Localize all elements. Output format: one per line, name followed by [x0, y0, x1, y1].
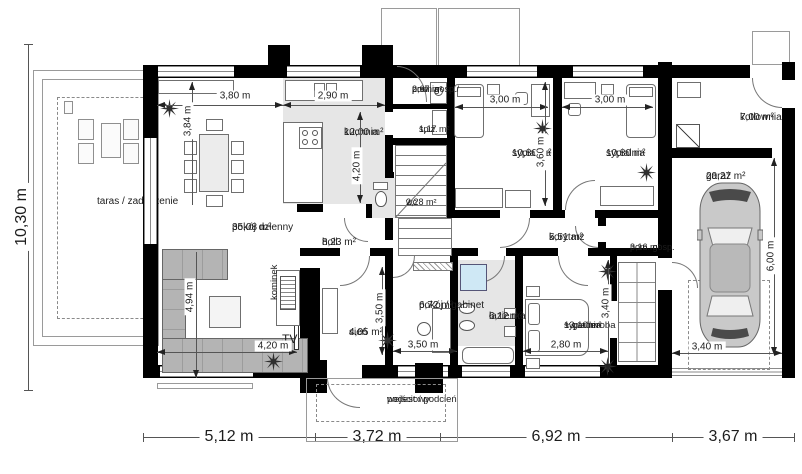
- terrace-table: [101, 123, 121, 158]
- terrace-grill: [64, 101, 73, 114]
- dim-tick: [143, 433, 144, 442]
- floor-plan: taras / zadaszenie: [0, 0, 802, 474]
- dining-chair: [184, 160, 197, 174]
- window-kitchen-top: [287, 66, 360, 77]
- dim-arrow: [605, 260, 611, 268]
- wall-house-garage: [658, 62, 672, 365]
- wall-corridor-bottom: [506, 248, 558, 256]
- wall-kitchen-island-stub: [297, 203, 323, 212]
- cooktop-burner: [312, 139, 318, 145]
- dim-arrow: [455, 104, 463, 110]
- nightstand: [526, 286, 540, 297]
- dim-label-sofa-h: 4,94 m: [185, 279, 196, 316]
- dining-chair: [231, 179, 244, 193]
- dim-arrow: [379, 267, 385, 275]
- car: [697, 180, 763, 350]
- wall-corridor-bottom: [588, 248, 598, 256]
- dim-arrow: [357, 195, 363, 203]
- dim-label-kitchen-h: 4,20 m: [352, 148, 363, 185]
- dim-tick: [24, 390, 33, 391]
- dim-label-bottom-3: 6,92 m: [527, 428, 586, 446]
- bed-pillow: [629, 87, 653, 97]
- dim-arrow: [672, 350, 680, 356]
- window-bath-bottom: [462, 366, 510, 377]
- cooktop-burner: [302, 130, 308, 136]
- porch-dashed: [316, 384, 446, 422]
- dim-label-bottom-4: 3,67 m: [704, 428, 763, 446]
- dim-line: [157, 352, 297, 353]
- wall-bedroom-divider: [553, 78, 562, 210]
- wall-garage-right: [782, 62, 795, 378]
- cooktop-burner: [302, 139, 308, 145]
- wall-corridor-top: [595, 210, 658, 218]
- terrace-chair: [78, 143, 94, 164]
- door-arc-bedroom2: [565, 180, 595, 210]
- boiler-door-outline: [752, 31, 790, 65]
- dim-arrow: [283, 102, 291, 108]
- door-arc-kotlownia: [752, 78, 782, 108]
- dim-arrow: [189, 82, 195, 90]
- dim-label-garage-w: 3,40 m: [689, 342, 726, 353]
- front-door-gap: [327, 365, 362, 378]
- dining-chair: [231, 160, 244, 174]
- dining-chair: [231, 141, 244, 155]
- sink-oval: [459, 320, 475, 331]
- wall-kitchen-pralnia: [385, 65, 393, 112]
- wall-hung-bidet: [504, 326, 516, 337]
- dim-line: [455, 107, 548, 108]
- door-arc-bedroom3: [558, 256, 588, 286]
- terrace-chair: [78, 119, 94, 140]
- dim-label-office-w: 3,50 m: [405, 340, 442, 351]
- dim-label-bed2-w: 3,00 m: [592, 95, 629, 106]
- window-bedroom2: [573, 66, 643, 77]
- bathtub: [462, 347, 514, 364]
- dim-arrow: [357, 112, 363, 120]
- nightstand: [487, 84, 500, 95]
- toilet-tank: [373, 182, 388, 190]
- dim-arrow: [542, 198, 548, 206]
- dim-label-bed1-w: 3,00 m: [487, 95, 524, 106]
- window-terrace-door: [144, 138, 157, 244]
- desk-chair: [417, 322, 431, 336]
- dim-arrow: [523, 348, 531, 354]
- dim-label-tv-wall: 4,20 m: [255, 341, 292, 352]
- dim-label-living-w: 3,80 m: [217, 91, 254, 102]
- wall-corridor-bottom: [300, 248, 340, 256]
- door-gap-kotlownia: [750, 65, 786, 78]
- dim-arrow: [377, 102, 385, 108]
- dim-arrow: [771, 158, 777, 166]
- wall-pralnia-spiz: [393, 104, 447, 109]
- hall-closet: [322, 288, 338, 334]
- dresser: [455, 188, 503, 208]
- dim-line: [192, 82, 193, 205]
- dresser: [600, 186, 654, 206]
- sofa-top-arm: [162, 249, 228, 280]
- wall-corridor-top: [530, 210, 565, 218]
- dim-arrow: [600, 348, 608, 354]
- window-living-top: [158, 66, 234, 77]
- dim-line: [562, 107, 653, 108]
- terrace-edge-line: [157, 383, 253, 389]
- wall-corridor-bottom: [370, 248, 393, 256]
- door-arc-sien: [340, 256, 370, 286]
- dim-label-bed3-h: 3,40 m: [601, 285, 612, 322]
- dim-tick: [24, 44, 33, 45]
- dim-arrow: [605, 364, 611, 372]
- dim-arrow: [645, 104, 653, 110]
- dim-label-bed-h: 3,60 m: [536, 134, 547, 171]
- boiler-appliance: [677, 82, 701, 98]
- dresser: [505, 190, 531, 208]
- dining-chair: [184, 141, 197, 155]
- wall-garage-bottom-post: [658, 350, 672, 378]
- dim-label-office-h: 3,50 m: [375, 290, 386, 327]
- dim-line: [393, 351, 457, 352]
- floor-drain: [676, 124, 700, 148]
- door-arc-gabinet: [393, 256, 415, 278]
- door-arc-bedroom1: [500, 218, 530, 248]
- toilet-bowl: [375, 191, 387, 207]
- wall-kotlownia-garage: [672, 148, 772, 158]
- dining-chair: [184, 179, 197, 193]
- dim-arrow: [193, 370, 199, 378]
- dim-line: [523, 351, 608, 352]
- window-bedroom1: [467, 66, 537, 77]
- dim-line: [157, 105, 283, 106]
- dining-table: [199, 134, 229, 192]
- radiator: [413, 262, 453, 271]
- fireplace-grate: [280, 276, 296, 310]
- dim-line: [196, 252, 197, 378]
- dim-arrow: [562, 104, 570, 110]
- dim-arrow: [540, 104, 548, 110]
- stairs-lower: [398, 218, 452, 256]
- terrace-chair: [123, 119, 139, 140]
- wardrobe-shelves: [618, 262, 656, 362]
- wall-garage-bottom-post: [782, 350, 795, 378]
- door-gap-garage-house: [658, 258, 672, 290]
- nightstand: [601, 84, 614, 95]
- dim-label-living-h: 3,84 m: [183, 103, 194, 140]
- dim-arrow: [275, 102, 283, 108]
- dim-arrow: [157, 102, 165, 108]
- dim-label-garage-h: 6,00 m: [766, 238, 777, 275]
- dim-line: [283, 105, 385, 106]
- dim-label-total-height: 10,30 m: [13, 183, 31, 251]
- cooktop-burner: [312, 130, 318, 136]
- plant-icon: [264, 352, 283, 371]
- wall-spiz-stairs: [385, 138, 447, 145]
- dim-arrow: [542, 82, 548, 90]
- dim-arrow: [157, 349, 165, 355]
- wall-pomgosp-left: [598, 218, 606, 226]
- terrace-chair: [123, 143, 139, 164]
- bed-pillow: [528, 303, 540, 325]
- dim-arrow: [774, 350, 782, 356]
- wall-pomgosp-left: [598, 242, 606, 248]
- dim-label-bed3-w: 2,80 m: [548, 340, 585, 351]
- dim-tick: [794, 433, 795, 442]
- dim-arrow: [379, 347, 385, 355]
- dim-arrow: [449, 348, 457, 354]
- bed-pillow: [457, 87, 481, 97]
- dim-tick: [672, 433, 673, 442]
- dim-label-kitchen-w: 2,90 m: [315, 91, 352, 102]
- dining-chair: [206, 119, 223, 131]
- dim-label-bottom-1: 5,12 m: [200, 428, 259, 446]
- wall-lazienka-bedroom3: [515, 248, 523, 365]
- dim-arrow: [393, 348, 401, 354]
- shaft-outline: [438, 8, 520, 66]
- dim-line: [672, 353, 782, 354]
- coffee-table: [209, 296, 241, 328]
- dining-chair: [206, 195, 223, 207]
- door-gap-kotlownia-side: [782, 80, 795, 108]
- plant-icon: [637, 163, 656, 182]
- nightstand: [526, 358, 540, 369]
- shower: [460, 264, 487, 291]
